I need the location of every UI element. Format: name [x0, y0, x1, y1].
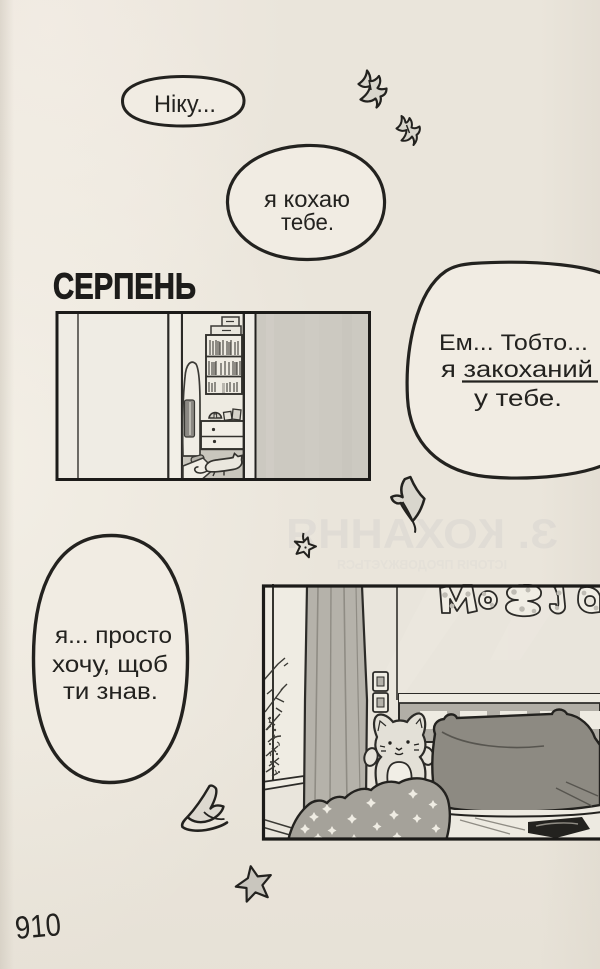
svg-text:ти знав.: ти знав. [63, 678, 158, 704]
svg-text:Ніку...: Ніку... [154, 91, 216, 118]
svg-text:я... просто: я... просто [55, 622, 172, 648]
svg-text:З. КОХАННЯ: З. КОХАННЯ [286, 510, 558, 557]
svg-text:СЕРПЕНЬ: СЕРПЕНЬ [53, 266, 196, 307]
svg-text:ІСТОРІЯ ПРОДОВЖУЄТЬСЯ: ІСТОРІЯ ПРОДОВЖУЄТЬСЯ [337, 557, 507, 572]
svg-text:хочу, щоб: хочу, щоб [52, 651, 168, 677]
svg-text:я закоханий: я закоханий [441, 356, 593, 382]
svg-text:Ем... Тобто...: Ем... Тобто... [439, 330, 588, 355]
svg-text:910: 910 [13, 906, 62, 946]
svg-text:у тебе.: у тебе. [474, 385, 562, 411]
svg-text:тебе.: тебе. [281, 209, 334, 235]
